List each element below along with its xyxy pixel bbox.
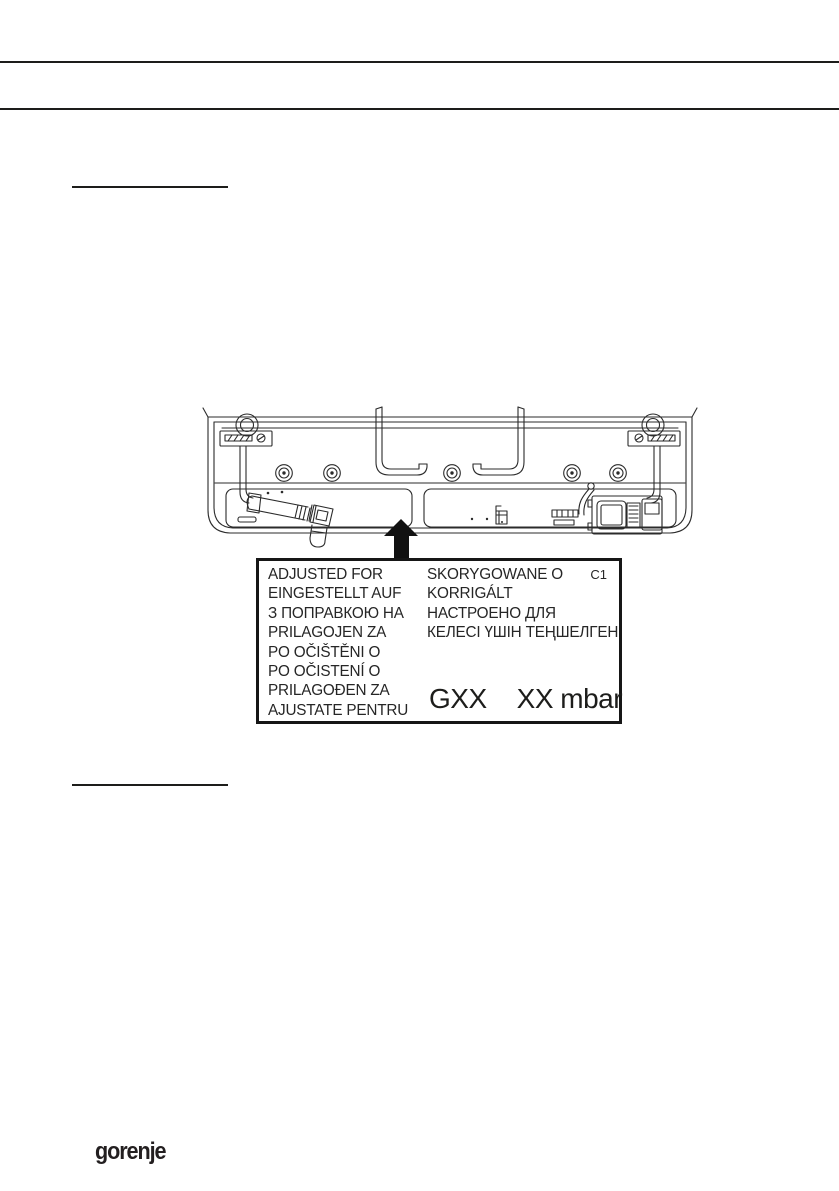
label-line: PO OČIŠTĚNI O	[268, 643, 408, 662]
hob-underside-drawing	[200, 405, 700, 565]
gas-pressure-value: XX mbar	[517, 683, 622, 714]
manual-page: ADJUSTED FOR EINGESTELLT AUF З ПОПРАВКОЮ…	[0, 0, 839, 1191]
gas-type-value: GXX	[429, 683, 487, 714]
label-line: НАСТРОЕНО ДЛЯ	[427, 604, 618, 623]
label-line: EINGESTELLT AUF	[268, 584, 408, 603]
label-left-column: ADJUSTED FOR EINGESTELLT AUF З ПОПРАВКОЮ…	[268, 565, 408, 720]
hinge-bracket-left	[220, 414, 272, 503]
up-arrow-icon	[384, 519, 418, 558]
screw-icon	[564, 465, 581, 482]
gas-inlet-pipe	[238, 491, 333, 547]
section-underline-2	[72, 784, 228, 786]
gorenje-logo: gorenje	[95, 1138, 165, 1166]
label-line: AJUSTATE PENTRU	[268, 701, 408, 720]
power-connection-box	[579, 483, 662, 534]
header-rule-top	[0, 61, 839, 63]
screw-icon	[610, 465, 627, 482]
screw-icon	[276, 465, 293, 482]
terminal-block	[552, 510, 578, 525]
label-line: ADJUSTED FOR	[268, 565, 408, 584]
label-line: PRILAGOJEN ZA	[268, 623, 408, 642]
label-line: KORRIGÁLT	[427, 584, 618, 603]
gas-setting-values: GXXXX mbar	[429, 683, 622, 715]
screw-icon	[324, 465, 341, 482]
lower-panel-strip	[226, 489, 676, 527]
mounting-clip	[471, 506, 507, 524]
label-line: PRILAGOĐEN ZA	[268, 681, 408, 700]
label-line: КЕЛЕСІ ҮШІН ТЕҢШЕЛГЕН	[427, 623, 618, 642]
screw-icons	[276, 465, 627, 482]
header-rule-bottom	[0, 108, 839, 110]
label-code: C1	[590, 567, 607, 582]
rating-label: ADJUSTED FOR EINGESTELLT AUF З ПОПРАВКОЮ…	[256, 558, 622, 724]
screw-icon	[444, 465, 461, 482]
section-underline-1	[72, 186, 228, 188]
label-line: З ПОПРАВКОЮ НА	[268, 604, 408, 623]
label-line: PO OČISTENÍ O	[268, 662, 408, 681]
